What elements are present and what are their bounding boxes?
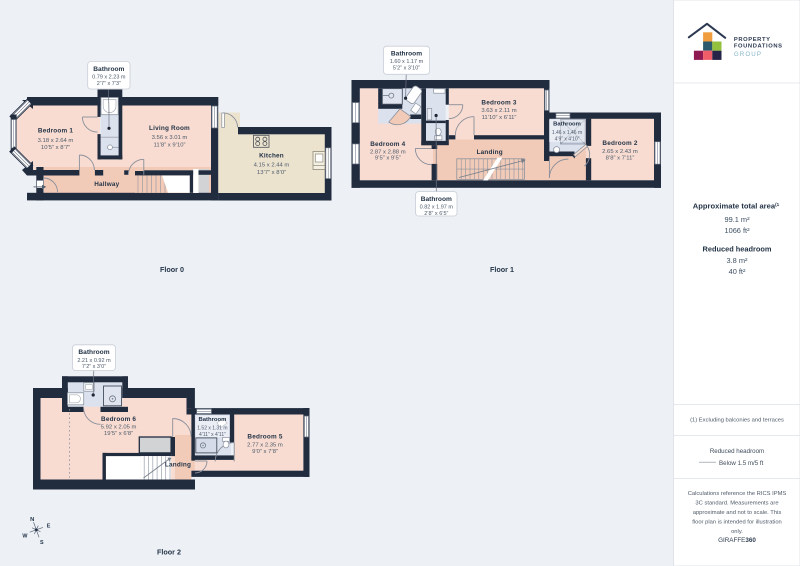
svg-text:Bedroom 4: Bedroom 4 bbox=[370, 141, 405, 148]
svg-text:13’7” x 8’0”: 13’7” x 8’0” bbox=[257, 170, 286, 176]
svg-text:(1) Excluding balconies and te: (1) Excluding balconies and terraces bbox=[690, 418, 784, 424]
svg-text:4.15 x 2.44 m: 4.15 x 2.44 m bbox=[254, 163, 290, 169]
svg-text:E: E bbox=[47, 524, 51, 530]
svg-text:7’2” x 3’0”: 7’2” x 3’0” bbox=[82, 364, 106, 370]
svg-text:Bathroom: Bathroom bbox=[391, 51, 422, 58]
svg-text:8’8” x 7’11”: 8’8” x 7’11” bbox=[606, 155, 635, 161]
svg-text:10’5” x 8’7”: 10’5” x 8’7” bbox=[41, 145, 70, 151]
svg-text:Bedroom 5: Bedroom 5 bbox=[247, 434, 282, 441]
svg-text:floor plan is intended for ill: floor plan is intended for illustration bbox=[692, 519, 782, 525]
svg-text:Landing: Landing bbox=[165, 462, 191, 469]
svg-text:19’5” x 6’8”: 19’5” x 6’8” bbox=[104, 431, 133, 437]
svg-text:1.60 x 1.17 m: 1.60 x 1.17 m bbox=[390, 59, 424, 65]
svg-text:99.1 m²: 99.1 m² bbox=[724, 215, 750, 224]
svg-text:1.52 x 1.31 m: 1.52 x 1.31 m bbox=[197, 425, 227, 431]
svg-text:11’10” x 6’11”: 11’10” x 6’11” bbox=[482, 115, 517, 121]
svg-text:2.77 x 2.35 m: 2.77 x 2.35 m bbox=[247, 442, 283, 448]
svg-text:S: S bbox=[40, 540, 44, 546]
svg-text:Reduced headroom: Reduced headroom bbox=[703, 245, 772, 254]
svg-text:11’8” x 9’10”: 11’8” x 9’10” bbox=[154, 142, 186, 148]
svg-text:2.21 x 0.92 m: 2.21 x 0.92 m bbox=[77, 358, 111, 364]
svg-text:2.87 x 2.88 m: 2.87 x 2.88 m bbox=[370, 149, 406, 155]
svg-text:Bathroom: Bathroom bbox=[78, 349, 109, 356]
svg-text:Approximate total area(1: Approximate total area(1 bbox=[693, 201, 780, 210]
svg-text:Calculations reference the RIC: Calculations reference the RICS IPMS bbox=[688, 491, 787, 497]
svg-text:5’2” x 3’10”: 5’2” x 3’10” bbox=[393, 66, 420, 72]
svg-text:0.82 x 1.97 m: 0.82 x 1.97 m bbox=[420, 205, 454, 211]
svg-text:Kitchen: Kitchen bbox=[259, 153, 284, 160]
svg-text:FOUNDATIONS: FOUNDATIONS bbox=[734, 43, 783, 49]
svg-text:Bathroom: Bathroom bbox=[421, 196, 452, 203]
svg-text:Bedroom 1: Bedroom 1 bbox=[38, 127, 73, 134]
svg-text:9’0” x 7’8”: 9’0” x 7’8” bbox=[252, 449, 278, 455]
svg-text:Bedroom 2: Bedroom 2 bbox=[602, 140, 637, 147]
svg-text:2.65 x 2.43 m: 2.65 x 2.43 m bbox=[602, 149, 638, 155]
svg-text:3C standard. Measurements are: 3C standard. Measurements are bbox=[695, 500, 778, 506]
svg-text:4’9” x 4’10”: 4’9” x 4’10” bbox=[555, 137, 580, 143]
svg-text:4’11” x 4’11”: 4’11” x 4’11” bbox=[199, 432, 226, 438]
svg-text:9’5” x 9’5”: 9’5” x 9’5” bbox=[375, 156, 401, 162]
svg-text:3.63 x 2.11 m: 3.63 x 2.11 m bbox=[481, 108, 516, 114]
svg-text:Below 1.5 m/5 ft: Below 1.5 m/5 ft bbox=[719, 460, 764, 467]
svg-text:only.: only. bbox=[731, 529, 743, 535]
svg-text:Reduced headroom: Reduced headroom bbox=[710, 448, 764, 455]
svg-text:0.79 x 2.23 m: 0.79 x 2.23 m bbox=[92, 75, 126, 81]
svg-text:5.92 x 2.05 m: 5.92 x 2.05 m bbox=[101, 424, 137, 430]
svg-text:Bedroom 6: Bedroom 6 bbox=[101, 416, 136, 423]
svg-text:Floor 1: Floor 1 bbox=[490, 265, 514, 274]
svg-text:3.56 x 3.01 m: 3.56 x 3.01 m bbox=[152, 135, 188, 141]
svg-text:N: N bbox=[30, 517, 34, 523]
svg-text:GIRAFFE360: GIRAFFE360 bbox=[718, 537, 756, 544]
svg-text:40 ft²: 40 ft² bbox=[729, 267, 746, 276]
svg-text:Floor 0: Floor 0 bbox=[160, 265, 184, 274]
svg-text:approximate and not to scale.: approximate and not to scale. This bbox=[693, 510, 782, 516]
svg-text:2’8” x 6’5”: 2’8” x 6’5” bbox=[424, 211, 448, 217]
svg-text:Bathroom: Bathroom bbox=[93, 66, 124, 73]
svg-text:3.8 m²: 3.8 m² bbox=[727, 256, 748, 265]
svg-text:3.18 x 2.64 m: 3.18 x 2.64 m bbox=[38, 138, 74, 144]
svg-text:Landing: Landing bbox=[477, 149, 503, 156]
svg-text:1.46 x 1.46 m: 1.46 x 1.46 m bbox=[552, 130, 582, 136]
svg-text:1066 ft²: 1066 ft² bbox=[724, 226, 750, 235]
svg-text:PROPERTY: PROPERTY bbox=[734, 37, 771, 43]
svg-text:Bathroom: Bathroom bbox=[198, 417, 226, 423]
svg-text:Hallway: Hallway bbox=[94, 181, 119, 188]
svg-text:2’7” x 7’3”: 2’7” x 7’3” bbox=[97, 81, 121, 87]
svg-text:Bedroom 3: Bedroom 3 bbox=[481, 99, 516, 106]
svg-text:Bathroom: Bathroom bbox=[553, 121, 581, 127]
svg-text:GROUP: GROUP bbox=[734, 51, 762, 58]
svg-text:Floor 2: Floor 2 bbox=[157, 548, 181, 557]
svg-text:Living Room: Living Room bbox=[149, 125, 190, 132]
